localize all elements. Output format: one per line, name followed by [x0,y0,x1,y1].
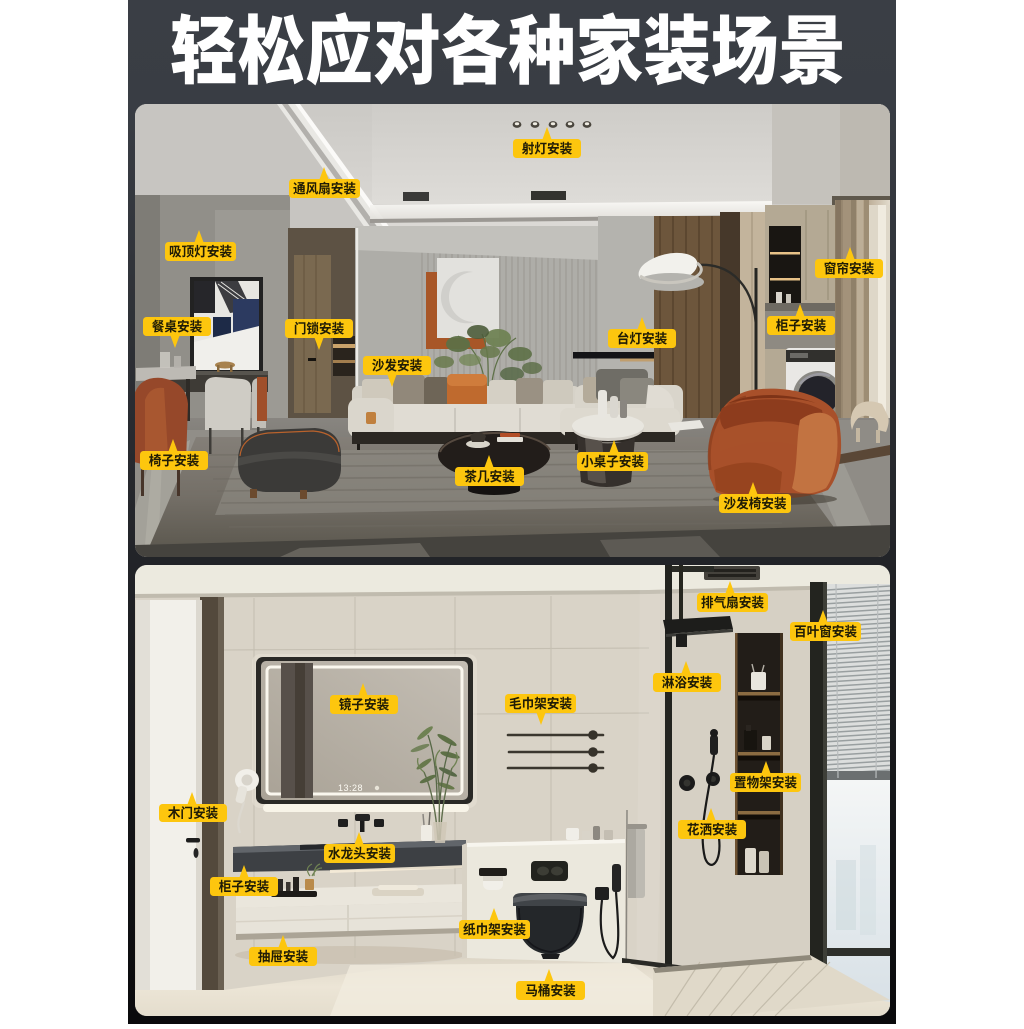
svg-text:13:28: 13:28 [338,783,363,793]
